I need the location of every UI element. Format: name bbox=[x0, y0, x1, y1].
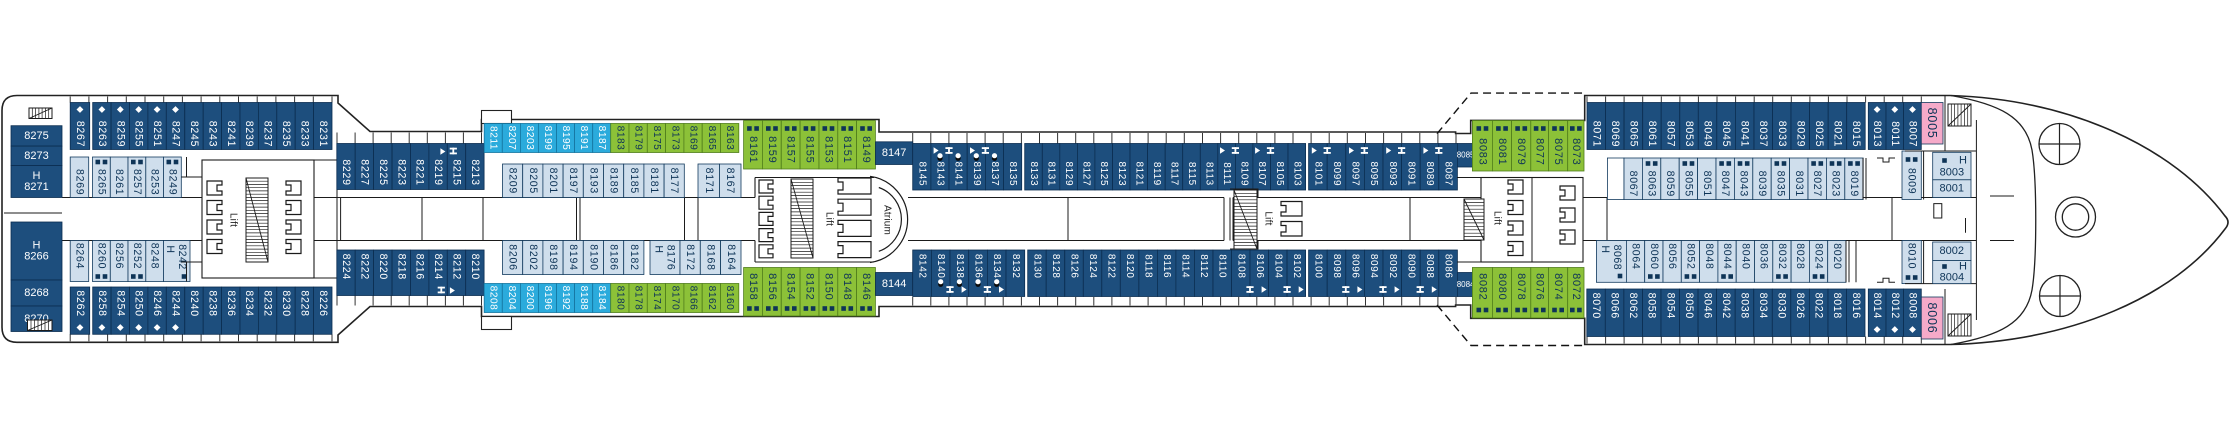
svg-text:8264: 8264 bbox=[74, 243, 86, 269]
svg-text:8047: 8047 bbox=[1719, 171, 1731, 197]
svg-text:8223: 8223 bbox=[395, 159, 407, 185]
svg-text:8234: 8234 bbox=[243, 290, 255, 316]
svg-text:8255: 8255 bbox=[133, 121, 145, 147]
svg-text:8142: 8142 bbox=[917, 254, 928, 279]
svg-text:8050: 8050 bbox=[1683, 293, 1695, 319]
svg-text:8164: 8164 bbox=[725, 244, 737, 270]
svg-text:8061: 8061 bbox=[1646, 121, 1658, 147]
svg-text:8243: 8243 bbox=[206, 121, 218, 147]
svg-text:8057: 8057 bbox=[1665, 121, 1677, 147]
svg-text:8031: 8031 bbox=[1793, 171, 1805, 197]
svg-text:8200: 8200 bbox=[524, 286, 535, 311]
svg-text:8177: 8177 bbox=[668, 168, 680, 194]
svg-text:8089: 8089 bbox=[1424, 161, 1435, 186]
svg-text:H: H bbox=[33, 170, 41, 182]
svg-text:8077: 8077 bbox=[1534, 138, 1546, 165]
svg-text:8171: 8171 bbox=[703, 168, 715, 194]
svg-text:8192: 8192 bbox=[560, 286, 571, 311]
svg-text:8266: 8266 bbox=[24, 251, 48, 263]
svg-text:8107: 8107 bbox=[1256, 161, 1267, 186]
svg-text:8043: 8043 bbox=[1738, 171, 1750, 197]
svg-text:8097: 8097 bbox=[1350, 161, 1361, 186]
svg-text:8034: 8034 bbox=[1757, 293, 1769, 319]
svg-text:8072: 8072 bbox=[1570, 273, 1582, 300]
svg-text:Atrium: Atrium bbox=[882, 205, 893, 235]
svg-text:8179: 8179 bbox=[633, 126, 644, 151]
svg-text:8027: 8027 bbox=[1811, 171, 1823, 197]
svg-text:8229: 8229 bbox=[340, 159, 352, 185]
svg-text:8113: 8113 bbox=[1204, 162, 1215, 186]
svg-text:8013: 8013 bbox=[1871, 121, 1883, 147]
svg-text:8120: 8120 bbox=[1124, 254, 1135, 279]
svg-text:8021: 8021 bbox=[1831, 121, 1843, 147]
svg-text:8195: 8195 bbox=[560, 126, 571, 151]
svg-text:8141: 8141 bbox=[953, 161, 964, 186]
svg-text:8191: 8191 bbox=[578, 126, 589, 151]
svg-text:8020: 8020 bbox=[1831, 243, 1843, 269]
svg-text:8262: 8262 bbox=[74, 290, 86, 316]
svg-text:8220: 8220 bbox=[377, 254, 389, 280]
svg-text:8008: 8008 bbox=[1907, 293, 1919, 319]
svg-text:8244: 8244 bbox=[170, 290, 182, 316]
svg-text:8119: 8119 bbox=[1151, 162, 1162, 186]
svg-text:8065: 8065 bbox=[1627, 121, 1639, 147]
svg-text:8261: 8261 bbox=[113, 169, 125, 195]
svg-text:8007: 8007 bbox=[1907, 121, 1919, 147]
svg-text:Lift: Lift bbox=[824, 212, 835, 226]
svg-text:8239: 8239 bbox=[243, 121, 255, 147]
svg-text:8011: 8011 bbox=[1889, 121, 1901, 147]
svg-text:8073: 8073 bbox=[1570, 138, 1582, 165]
svg-text:8265: 8265 bbox=[95, 169, 107, 195]
svg-text:8147: 8147 bbox=[882, 147, 906, 159]
svg-text:8105: 8105 bbox=[1274, 161, 1285, 186]
svg-text:8160: 8160 bbox=[724, 286, 735, 311]
svg-text:8083: 8083 bbox=[1476, 138, 1488, 165]
svg-text:8137: 8137 bbox=[989, 161, 1000, 186]
svg-text:8121: 8121 bbox=[1133, 161, 1144, 186]
svg-text:8045: 8045 bbox=[1720, 121, 1732, 147]
svg-text:8003: 8003 bbox=[1940, 167, 1964, 179]
svg-text:8198: 8198 bbox=[547, 244, 559, 270]
svg-text:8159: 8159 bbox=[766, 136, 778, 163]
svg-text:8158: 8158 bbox=[747, 273, 759, 300]
svg-text:8189: 8189 bbox=[608, 168, 620, 194]
svg-text:8215: 8215 bbox=[451, 159, 463, 185]
svg-text:8038: 8038 bbox=[1739, 293, 1751, 319]
svg-text:8202: 8202 bbox=[527, 244, 539, 270]
svg-text:8207: 8207 bbox=[506, 126, 517, 151]
svg-text:8071: 8071 bbox=[1590, 121, 1602, 147]
svg-text:8257: 8257 bbox=[131, 169, 143, 195]
svg-text:8068: 8068 bbox=[1611, 245, 1623, 271]
svg-text:8178: 8178 bbox=[633, 286, 644, 311]
svg-text:8148: 8148 bbox=[841, 273, 853, 300]
svg-text:8218: 8218 bbox=[395, 254, 407, 280]
svg-text:8140: 8140 bbox=[935, 254, 946, 279]
svg-text:8253: 8253 bbox=[149, 169, 161, 195]
svg-text:8002: 8002 bbox=[1940, 245, 1964, 257]
svg-text:8209: 8209 bbox=[507, 168, 519, 194]
svg-text:8056: 8056 bbox=[1666, 243, 1678, 269]
svg-text:8100: 8100 bbox=[1312, 254, 1323, 279]
svg-text:8135: 8135 bbox=[1007, 161, 1018, 186]
svg-text:8219: 8219 bbox=[432, 159, 444, 185]
svg-text:8235: 8235 bbox=[280, 121, 292, 147]
svg-text:H: H bbox=[164, 245, 176, 253]
svg-text:8245: 8245 bbox=[188, 121, 200, 147]
svg-text:8096: 8096 bbox=[1350, 254, 1361, 279]
svg-text:8064: 8064 bbox=[1630, 243, 1642, 269]
svg-text:8176: 8176 bbox=[665, 245, 677, 271]
svg-text:8155: 8155 bbox=[804, 136, 816, 163]
svg-text:8196: 8196 bbox=[542, 286, 553, 311]
svg-text:8250: 8250 bbox=[133, 290, 145, 316]
svg-text:8175: 8175 bbox=[651, 126, 662, 151]
svg-text:8049: 8049 bbox=[1702, 121, 1714, 147]
svg-text:8156: 8156 bbox=[766, 273, 778, 300]
svg-text:8170: 8170 bbox=[669, 286, 680, 311]
svg-text:8010: 8010 bbox=[1906, 243, 1918, 269]
svg-text:8093: 8093 bbox=[1387, 161, 1398, 186]
svg-text:8095: 8095 bbox=[1368, 161, 1379, 186]
svg-text:8256: 8256 bbox=[113, 243, 125, 269]
svg-text:8060: 8060 bbox=[1648, 243, 1660, 269]
svg-text:8228: 8228 bbox=[298, 290, 310, 316]
svg-text:8104: 8104 bbox=[1272, 254, 1283, 279]
svg-text:8252: 8252 bbox=[131, 243, 143, 269]
svg-text:8216: 8216 bbox=[414, 254, 426, 280]
svg-text:8187: 8187 bbox=[596, 126, 607, 151]
svg-text:8180: 8180 bbox=[614, 286, 625, 311]
svg-text:8146: 8146 bbox=[860, 273, 872, 300]
svg-text:8208: 8208 bbox=[488, 286, 499, 311]
svg-text:8053: 8053 bbox=[1683, 121, 1695, 147]
svg-text:8044: 8044 bbox=[1721, 243, 1733, 269]
svg-text:8150: 8150 bbox=[822, 273, 834, 300]
svg-text:8157: 8157 bbox=[785, 136, 797, 163]
svg-text:8033: 8033 bbox=[1776, 121, 1788, 147]
svg-text:8182: 8182 bbox=[628, 244, 640, 270]
svg-text:8128: 8128 bbox=[1050, 254, 1061, 279]
svg-text:8232: 8232 bbox=[262, 290, 274, 316]
svg-text:8153: 8153 bbox=[822, 136, 834, 163]
svg-text:8082: 8082 bbox=[1476, 273, 1488, 300]
svg-text:8193: 8193 bbox=[587, 168, 599, 194]
svg-text:8149: 8149 bbox=[860, 136, 872, 163]
svg-text:8106: 8106 bbox=[1254, 254, 1265, 279]
svg-text:8188: 8188 bbox=[578, 286, 589, 311]
svg-text:8166: 8166 bbox=[688, 286, 699, 311]
svg-text:H: H bbox=[33, 239, 41, 251]
svg-text:8190: 8190 bbox=[587, 244, 599, 270]
svg-text:8260: 8260 bbox=[95, 243, 107, 269]
svg-text:8091: 8091 bbox=[1405, 161, 1416, 186]
svg-text:8037: 8037 bbox=[1757, 121, 1769, 147]
svg-text:8161: 8161 bbox=[747, 136, 759, 163]
svg-text:8230: 8230 bbox=[280, 290, 292, 316]
svg-text:8267: 8267 bbox=[74, 121, 86, 147]
svg-text:8069: 8069 bbox=[1609, 121, 1621, 147]
svg-text:8118: 8118 bbox=[1143, 254, 1154, 278]
svg-text:8151: 8151 bbox=[841, 136, 853, 163]
svg-text:8210: 8210 bbox=[469, 254, 481, 280]
svg-text:8052: 8052 bbox=[1685, 243, 1697, 269]
svg-text:8139: 8139 bbox=[971, 161, 982, 186]
svg-text:8231: 8231 bbox=[317, 121, 329, 147]
svg-text:8145: 8145 bbox=[916, 161, 927, 186]
svg-text:8136: 8136 bbox=[973, 254, 984, 279]
svg-text:8236: 8236 bbox=[225, 290, 237, 316]
svg-text:8101: 8101 bbox=[1312, 161, 1323, 186]
svg-text:8130: 8130 bbox=[1032, 254, 1043, 279]
svg-text:8054: 8054 bbox=[1664, 293, 1676, 319]
svg-text:8199: 8199 bbox=[542, 126, 553, 151]
svg-text:8174: 8174 bbox=[651, 286, 662, 311]
svg-text:8116: 8116 bbox=[1161, 254, 1172, 278]
svg-text:8271: 8271 bbox=[24, 181, 48, 193]
svg-text:8268: 8268 bbox=[24, 287, 48, 299]
svg-text:8066: 8066 bbox=[1609, 293, 1621, 319]
svg-text:8163: 8163 bbox=[724, 126, 735, 151]
svg-text:8125: 8125 bbox=[1098, 161, 1109, 186]
svg-text:8206: 8206 bbox=[507, 244, 519, 270]
svg-text:8018: 8018 bbox=[1831, 293, 1843, 319]
svg-text:8046: 8046 bbox=[1701, 293, 1713, 319]
svg-text:8059: 8059 bbox=[1664, 171, 1676, 197]
svg-text:8246: 8246 bbox=[151, 290, 163, 316]
svg-text:Lift: Lift bbox=[1263, 211, 1274, 225]
svg-text:8248: 8248 bbox=[149, 243, 161, 269]
svg-text:8162: 8162 bbox=[706, 286, 717, 311]
svg-text:8036: 8036 bbox=[1758, 243, 1770, 269]
svg-text:8063: 8063 bbox=[1646, 171, 1658, 197]
svg-text:8213: 8213 bbox=[469, 159, 481, 185]
svg-text:8221: 8221 bbox=[414, 159, 426, 185]
svg-text:8022: 8022 bbox=[1813, 293, 1825, 319]
svg-text:8109: 8109 bbox=[1239, 161, 1250, 186]
svg-text:8204: 8204 bbox=[506, 286, 517, 311]
svg-text:8133: 8133 bbox=[1028, 161, 1039, 186]
svg-text:8197: 8197 bbox=[567, 168, 579, 194]
svg-text:8076: 8076 bbox=[1534, 273, 1546, 300]
svg-text:8094: 8094 bbox=[1368, 254, 1379, 279]
svg-text:8173: 8173 bbox=[669, 126, 680, 151]
svg-text:8055: 8055 bbox=[1682, 171, 1694, 197]
svg-text:8103: 8103 bbox=[1291, 161, 1302, 186]
svg-text:8058: 8058 bbox=[1646, 293, 1658, 319]
svg-text:8028: 8028 bbox=[1794, 243, 1806, 269]
svg-text:8067: 8067 bbox=[1627, 171, 1639, 197]
svg-text:8184: 8184 bbox=[596, 286, 607, 311]
svg-text:8019: 8019 bbox=[1848, 171, 1860, 197]
svg-text:8009: 8009 bbox=[1906, 168, 1918, 194]
svg-text:H: H bbox=[1599, 245, 1611, 253]
svg-text:8186: 8186 bbox=[608, 244, 620, 270]
svg-text:8024: 8024 bbox=[1813, 243, 1825, 269]
svg-text:8110: 8110 bbox=[1217, 254, 1228, 278]
svg-text:8030: 8030 bbox=[1776, 293, 1788, 319]
svg-text:8075: 8075 bbox=[1552, 138, 1564, 165]
svg-text:8079: 8079 bbox=[1515, 138, 1527, 165]
svg-text:8051: 8051 bbox=[1701, 171, 1713, 197]
svg-text:8132: 8132 bbox=[1010, 254, 1021, 279]
svg-text:8167: 8167 bbox=[724, 168, 736, 194]
svg-text:8092: 8092 bbox=[1387, 254, 1398, 279]
svg-text:8240: 8240 bbox=[188, 290, 200, 316]
svg-text:8074: 8074 bbox=[1552, 273, 1564, 300]
svg-text:8183: 8183 bbox=[614, 126, 625, 151]
svg-text:8102: 8102 bbox=[1291, 254, 1302, 279]
svg-text:8247: 8247 bbox=[170, 121, 182, 147]
svg-text:8259: 8259 bbox=[114, 121, 126, 147]
svg-text:8152: 8152 bbox=[804, 273, 816, 300]
svg-text:8263: 8263 bbox=[96, 121, 108, 147]
svg-text:8131: 8131 bbox=[1046, 161, 1057, 186]
svg-text:8134: 8134 bbox=[991, 254, 1002, 279]
svg-text:8212: 8212 bbox=[451, 254, 463, 280]
svg-text:8001: 8001 bbox=[1940, 183, 1964, 195]
svg-text:8080: 8080 bbox=[1496, 273, 1508, 300]
svg-text:8032: 8032 bbox=[1776, 243, 1788, 269]
svg-text:8225: 8225 bbox=[377, 159, 389, 185]
svg-text:8127: 8127 bbox=[1081, 161, 1092, 186]
svg-text:8029: 8029 bbox=[1794, 121, 1806, 147]
svg-text:8114: 8114 bbox=[1180, 254, 1191, 278]
svg-text:8035: 8035 bbox=[1774, 171, 1786, 197]
svg-text:8016: 8016 bbox=[1850, 293, 1862, 319]
svg-text:8251: 8251 bbox=[151, 121, 163, 147]
svg-text:8086: 8086 bbox=[1443, 254, 1454, 279]
svg-text:8226: 8226 bbox=[317, 290, 329, 316]
svg-text:8181: 8181 bbox=[648, 168, 660, 194]
svg-text:8172: 8172 bbox=[684, 244, 696, 270]
svg-text:8254: 8254 bbox=[114, 290, 126, 316]
svg-text:8138: 8138 bbox=[954, 254, 965, 279]
svg-text:8039: 8039 bbox=[1756, 171, 1768, 197]
svg-text:8098: 8098 bbox=[1331, 254, 1342, 279]
svg-text:8222: 8222 bbox=[358, 254, 370, 280]
svg-text:8006: 8006 bbox=[1925, 302, 1939, 333]
svg-text:8227: 8227 bbox=[358, 159, 370, 185]
svg-text:8123: 8123 bbox=[1116, 161, 1127, 186]
svg-text:8108: 8108 bbox=[1235, 254, 1246, 279]
svg-text:8241: 8241 bbox=[225, 121, 237, 147]
svg-text:8237: 8237 bbox=[262, 121, 274, 147]
svg-text:8269: 8269 bbox=[74, 169, 86, 195]
svg-text:8062: 8062 bbox=[1627, 293, 1639, 319]
svg-text:H: H bbox=[1959, 155, 1967, 167]
svg-text:8041: 8041 bbox=[1739, 121, 1751, 147]
svg-text:8012: 8012 bbox=[1889, 293, 1901, 319]
svg-text:8115: 8115 bbox=[1186, 162, 1197, 186]
svg-text:8099: 8099 bbox=[1331, 161, 1342, 186]
svg-text:8129: 8129 bbox=[1063, 161, 1074, 186]
svg-text:8005: 8005 bbox=[1925, 108, 1939, 139]
svg-text:8144: 8144 bbox=[882, 278, 906, 290]
svg-text:Lift: Lift bbox=[1492, 211, 1503, 225]
svg-text:8015: 8015 bbox=[1850, 121, 1862, 147]
svg-text:8233: 8233 bbox=[298, 121, 310, 147]
svg-text:8025: 8025 bbox=[1813, 121, 1825, 147]
svg-text:8224: 8224 bbox=[340, 254, 352, 280]
svg-text:8014: 8014 bbox=[1871, 293, 1883, 319]
svg-text:8169: 8169 bbox=[688, 126, 699, 151]
svg-text:8238: 8238 bbox=[206, 290, 218, 316]
svg-text:8201: 8201 bbox=[547, 168, 559, 194]
svg-text:8211: 8211 bbox=[488, 126, 499, 150]
svg-text:8087: 8087 bbox=[1443, 161, 1454, 186]
svg-text:8154: 8154 bbox=[785, 273, 797, 300]
svg-text:8048: 8048 bbox=[1703, 243, 1715, 269]
svg-text:8185: 8185 bbox=[628, 168, 640, 194]
svg-text:8143: 8143 bbox=[935, 161, 946, 186]
svg-text:H: H bbox=[653, 245, 665, 253]
svg-text:8194: 8194 bbox=[567, 244, 579, 270]
svg-text:8040: 8040 bbox=[1739, 243, 1751, 269]
svg-text:8273: 8273 bbox=[24, 150, 48, 162]
svg-text:8117: 8117 bbox=[1168, 162, 1179, 186]
svg-text:8004: 8004 bbox=[1940, 272, 1964, 284]
svg-text:8275: 8275 bbox=[24, 130, 48, 142]
svg-text:8088: 8088 bbox=[1424, 254, 1435, 279]
svg-text:8111: 8111 bbox=[1221, 162, 1232, 185]
svg-text:8124: 8124 bbox=[1087, 254, 1098, 279]
svg-text:8081: 8081 bbox=[1496, 138, 1508, 165]
svg-text:8168: 8168 bbox=[705, 244, 717, 270]
svg-text:8258: 8258 bbox=[96, 290, 108, 316]
svg-text:8070: 8070 bbox=[1590, 293, 1602, 319]
svg-text:Lift: Lift bbox=[228, 213, 239, 227]
svg-text:8112: 8112 bbox=[1198, 254, 1209, 278]
svg-text:8078: 8078 bbox=[1515, 273, 1527, 300]
svg-text:8023: 8023 bbox=[1830, 171, 1842, 197]
svg-text:8090: 8090 bbox=[1405, 254, 1416, 279]
svg-text:8249: 8249 bbox=[166, 169, 178, 195]
svg-text:8203: 8203 bbox=[524, 126, 535, 151]
svg-text:8205: 8205 bbox=[527, 168, 539, 194]
svg-text:8042: 8042 bbox=[1720, 293, 1732, 319]
svg-text:8122: 8122 bbox=[1106, 254, 1117, 279]
svg-text:8026: 8026 bbox=[1794, 293, 1806, 319]
svg-text:8165: 8165 bbox=[706, 126, 717, 151]
svg-text:8214: 8214 bbox=[432, 254, 444, 280]
svg-text:8126: 8126 bbox=[1069, 254, 1080, 279]
